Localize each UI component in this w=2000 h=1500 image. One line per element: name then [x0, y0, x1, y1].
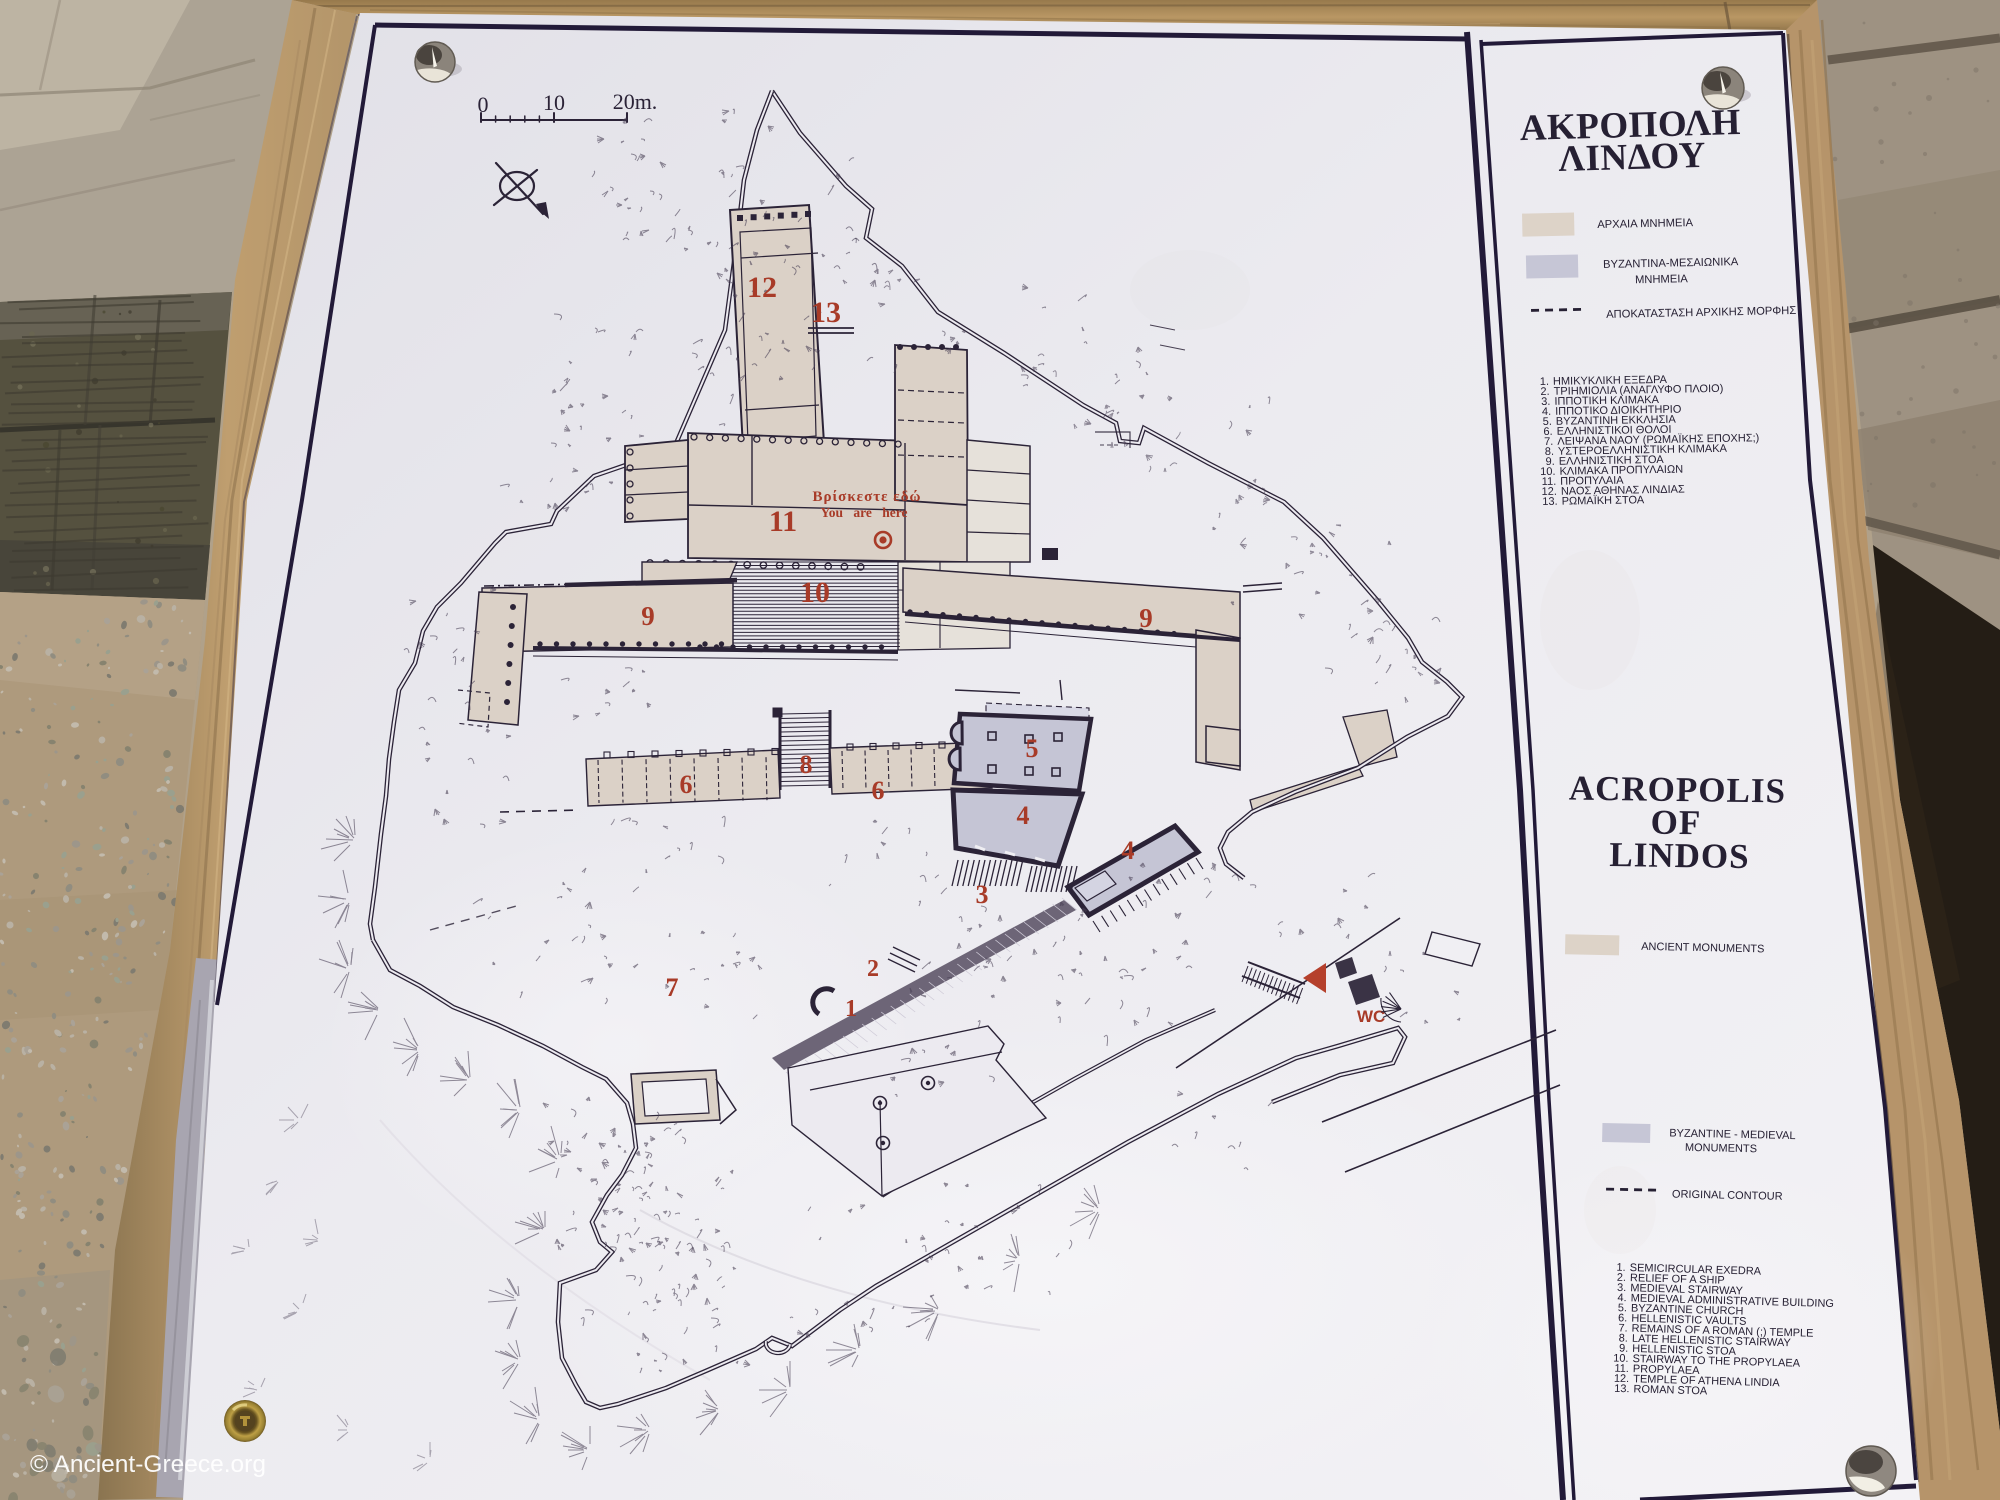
svg-text:ΡΩΜΑΪΚΗ ΣΤΟΑ: ΡΩΜΑΪΚΗ ΣΤΟΑ [1562, 494, 1645, 507]
svg-text:2: 2 [867, 956, 879, 982]
svg-text:6: 6 [872, 776, 885, 805]
svg-text:10: 10 [543, 90, 565, 115]
svg-text:13.: 13. [1542, 496, 1558, 508]
svg-text:ΜΝΗΜΕΙΑ: ΜΝΗΜΕΙΑ [1635, 273, 1689, 286]
svg-text:7: 7 [666, 973, 679, 1002]
svg-text:0: 0 [478, 92, 489, 117]
svg-text:13.: 13. [1614, 1383, 1630, 1395]
svg-text:ORIGINAL CONTOUR: ORIGINAL CONTOUR [1672, 1188, 1783, 1202]
svg-text:1: 1 [845, 996, 857, 1022]
svg-text:LINDOS: LINDOS [1609, 835, 1750, 876]
svg-text:3: 3 [976, 880, 989, 909]
svg-text:5: 5 [1026, 734, 1039, 763]
svg-text:ΑΡΧΑΙΑ ΜΝΗΜΕΙΑ: ΑΡΧΑΙΑ ΜΝΗΜΕΙΑ [1597, 217, 1694, 231]
svg-text:4: 4 [1017, 801, 1030, 830]
svg-text:20m.: 20m. [613, 89, 658, 114]
svg-text:9: 9 [641, 601, 655, 631]
svg-text:11: 11 [769, 505, 797, 538]
svg-text:10: 10 [800, 576, 830, 609]
svg-text:12: 12 [747, 271, 777, 304]
svg-text:WC: WC [1357, 1007, 1385, 1026]
svg-text:Βρίσκεστε εδώ: Βρίσκεστε εδώ [813, 489, 922, 505]
svg-text:9: 9 [1139, 603, 1153, 633]
svg-text:ΛΙΝΔΟΥ: ΛΙΝΔΟΥ [1558, 135, 1707, 180]
svg-text:13: 13 [811, 296, 841, 329]
svg-text:MONUMENTS: MONUMENTS [1685, 1142, 1757, 1156]
svg-text:6: 6 [680, 770, 693, 799]
svg-text:4: 4 [1122, 836, 1135, 865]
svg-text:8: 8 [800, 750, 813, 779]
svg-text:You are here: You are here [821, 505, 908, 520]
svg-text:© Ancient-Greece.org: © Ancient-Greece.org [30, 1451, 266, 1478]
svg-text:ROMAN STOA: ROMAN STOA [1633, 1383, 1708, 1397]
